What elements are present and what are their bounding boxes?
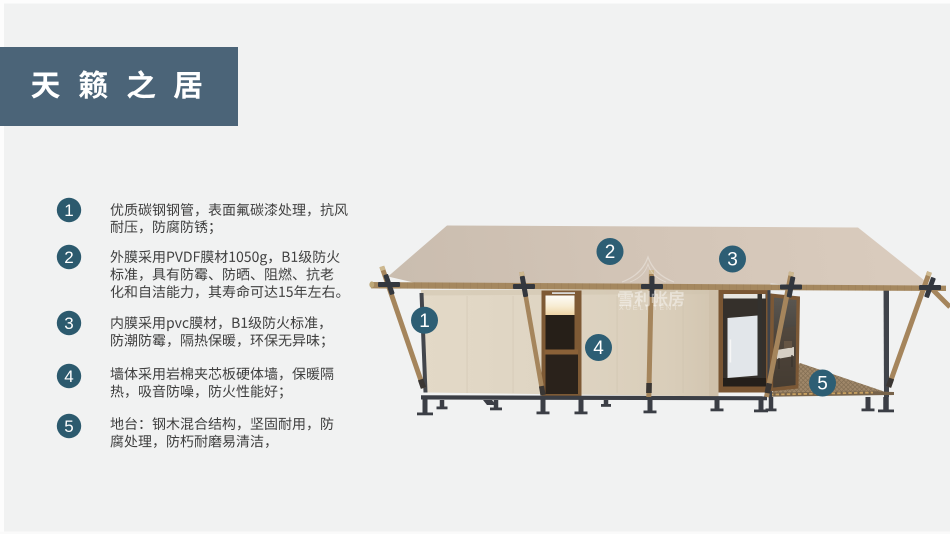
svg-text:3: 3 (64, 314, 73, 333)
svg-text:1: 1 (64, 201, 73, 220)
svg-text:5: 5 (64, 417, 73, 436)
svg-text:4: 4 (64, 367, 73, 386)
svg-text:2: 2 (64, 248, 73, 267)
svg-text:2: 2 (605, 242, 616, 263)
svg-text:3: 3 (727, 250, 738, 271)
svg-text:4: 4 (593, 338, 604, 359)
svg-text:1: 1 (419, 311, 430, 332)
svg-text:5: 5 (817, 374, 828, 395)
svg-text:XUELI TENT: XUELI TENT (619, 303, 679, 312)
